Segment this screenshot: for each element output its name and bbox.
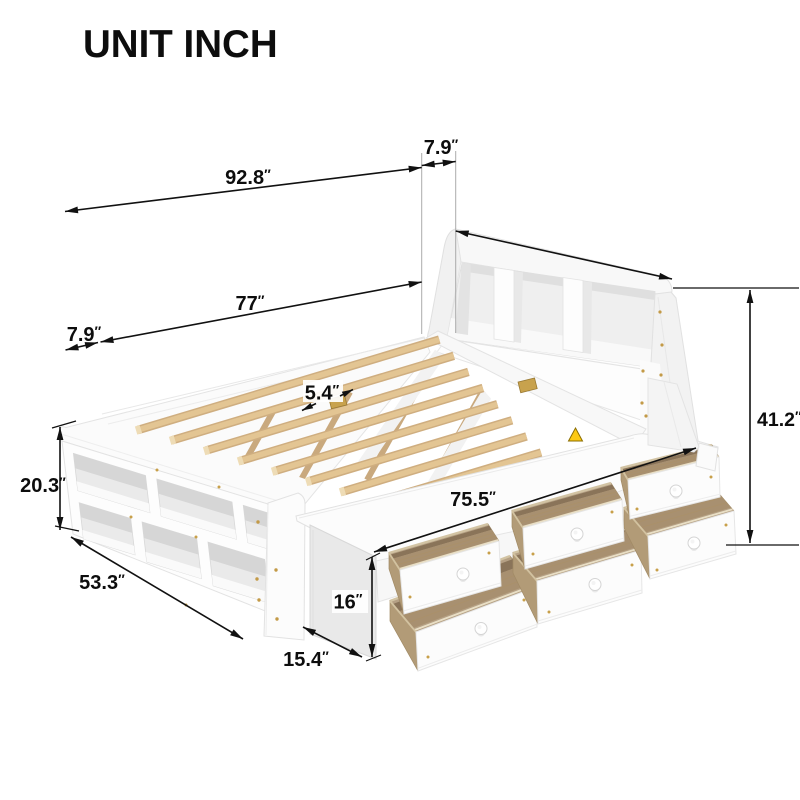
svg-text:41.2″: 41.2″ [757, 408, 800, 431]
svg-text:UNIT INCH: UNIT INCH [83, 23, 278, 66]
